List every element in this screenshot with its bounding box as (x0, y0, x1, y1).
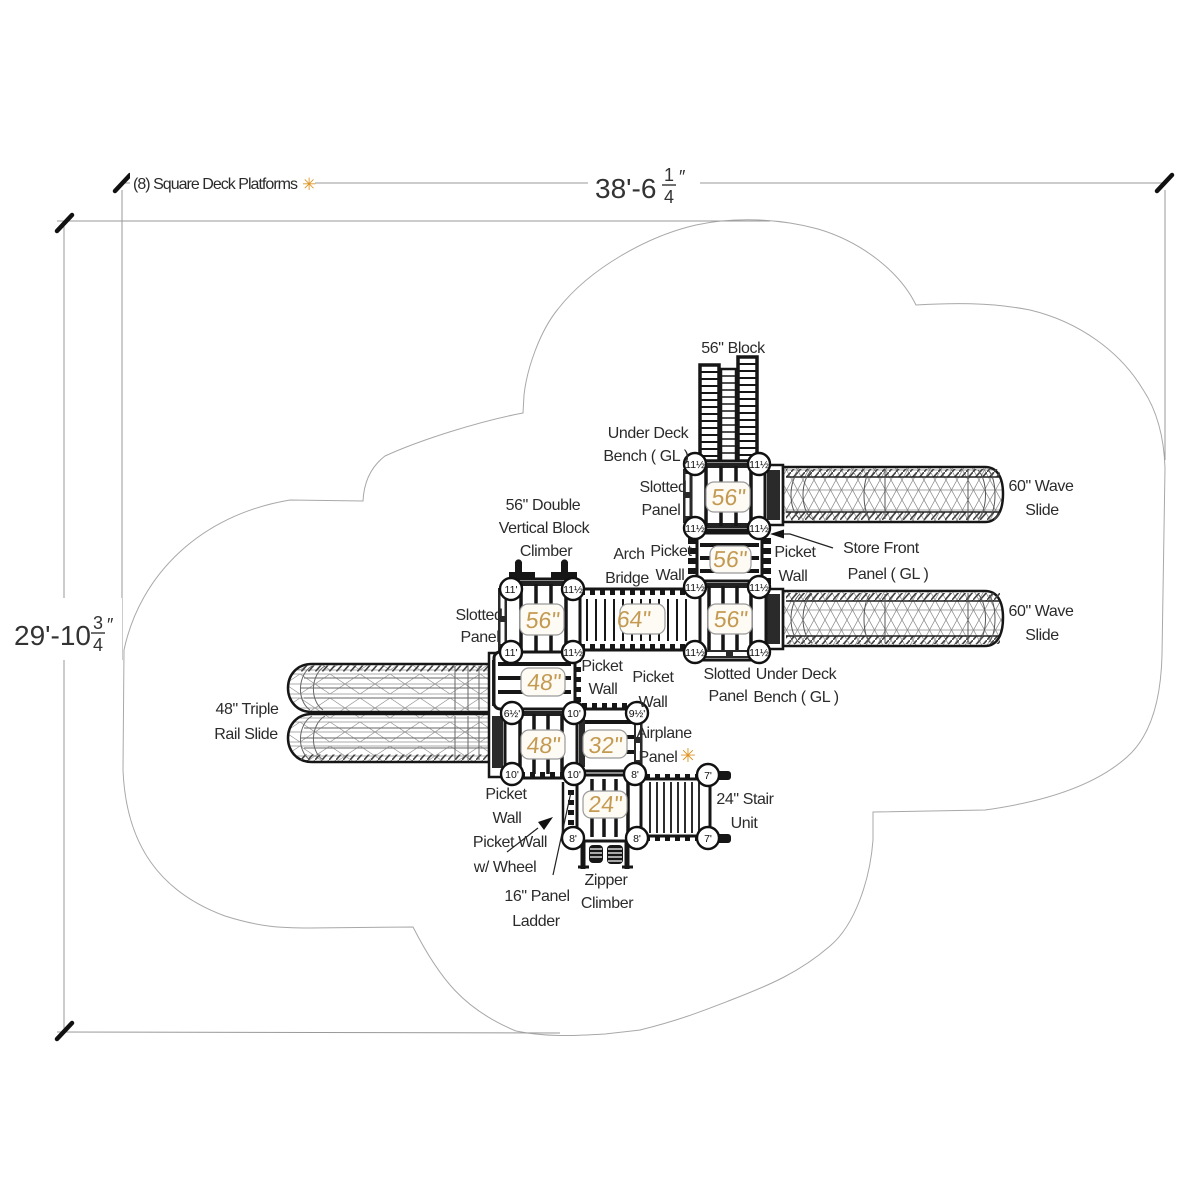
svg-text:56": 56" (525, 607, 561, 633)
svg-text:Panel: Panel (709, 688, 748, 705)
svg-text:10': 10' (505, 769, 519, 781)
svg-text:38'-6: 38'-6 (595, 173, 656, 204)
svg-text:Wall: Wall (656, 567, 685, 584)
svg-text:″: ″ (107, 615, 114, 635)
svg-text:11½: 11½ (685, 647, 705, 659)
svg-text:56": 56" (711, 484, 747, 510)
svg-text:Store Front: Store Front (843, 540, 920, 557)
svg-text:4: 4 (93, 635, 103, 655)
svg-text:6½': 6½' (504, 708, 521, 720)
svg-text:✳: ✳ (680, 746, 696, 767)
svg-text:Wall: Wall (493, 810, 522, 827)
svg-text:Picket: Picket (485, 786, 527, 803)
svg-text:56" Block: 56" Block (701, 340, 766, 357)
svg-text:Panel ( GL ): Panel ( GL ) (848, 566, 929, 583)
svg-text:Slotted: Slotted (703, 666, 750, 683)
svg-text:″: ″ (679, 167, 686, 187)
svg-text:60" Wave: 60" Wave (1008, 478, 1074, 495)
svg-text:60" Wave: 60" Wave (1008, 603, 1074, 620)
svg-text:24": 24" (587, 791, 623, 817)
svg-text:Zipper: Zipper (585, 872, 629, 889)
svg-text:Airplane: Airplane (636, 725, 692, 742)
svg-text:Panel: Panel (639, 749, 678, 766)
svg-text:8': 8' (631, 769, 639, 781)
svg-text:Wall: Wall (639, 694, 668, 711)
svg-text:Slide: Slide (1025, 502, 1059, 519)
svg-text:56" Double: 56" Double (506, 497, 581, 514)
svg-text:7': 7' (704, 770, 712, 782)
svg-text:7': 7' (704, 833, 712, 845)
svg-text:48" Triple: 48" Triple (215, 701, 279, 718)
svg-text:11½: 11½ (563, 584, 583, 596)
svg-text:Ladder: Ladder (512, 913, 560, 930)
svg-text:11½: 11½ (749, 459, 769, 471)
svg-text:(8) Square Deck Platforms: (8) Square Deck Platforms (133, 176, 298, 193)
svg-text:3: 3 (93, 613, 103, 633)
svg-text:1: 1 (664, 165, 674, 185)
svg-text:48": 48" (525, 732, 561, 758)
svg-text:48": 48" (526, 669, 562, 695)
svg-text:Vertical Block: Vertical Block (499, 520, 591, 537)
svg-text:Picket: Picket (650, 543, 692, 560)
svg-text:11½: 11½ (749, 647, 769, 659)
svg-text:11': 11' (505, 647, 518, 659)
svg-text:Wall: Wall (779, 568, 808, 585)
svg-text:Under Deck: Under Deck (756, 666, 838, 683)
svg-text:Slide: Slide (1025, 627, 1059, 644)
svg-text:Panel: Panel (642, 502, 681, 519)
svg-text:11½: 11½ (749, 582, 769, 594)
svg-text:11': 11' (505, 584, 518, 596)
svg-text:Slotted: Slotted (455, 607, 502, 624)
svg-text:Picket: Picket (774, 544, 816, 561)
svg-text:Bridge: Bridge (605, 570, 649, 587)
svg-text:Picket: Picket (632, 669, 674, 686)
svg-text:Bench ( GL ): Bench ( GL ) (603, 448, 688, 465)
svg-text:24" Stair: 24" Stair (716, 791, 774, 808)
svg-text:10': 10' (567, 708, 581, 720)
svg-text:4: 4 (664, 187, 674, 207)
svg-text:Wall: Wall (589, 681, 618, 698)
svg-text:29'-10: 29'-10 (14, 620, 91, 651)
svg-text:8': 8' (569, 833, 577, 845)
svg-text:8': 8' (633, 833, 641, 845)
svg-text:56": 56" (713, 606, 749, 632)
svg-text:Panel: Panel (461, 629, 500, 646)
svg-text:Unit: Unit (731, 815, 759, 832)
svg-text:✳: ✳ (302, 175, 316, 194)
svg-text:Picket: Picket (581, 658, 623, 675)
svg-text:Arch: Arch (613, 546, 644, 563)
svg-text:32": 32" (587, 732, 623, 758)
svg-text:Slotted: Slotted (639, 479, 686, 496)
svg-text:Climber: Climber (581, 895, 634, 912)
svg-text:Bench ( GL ): Bench ( GL ) (753, 689, 838, 706)
svg-text:11½: 11½ (563, 647, 583, 659)
svg-text:64": 64" (616, 606, 652, 632)
svg-text:Rail Slide: Rail Slide (214, 726, 278, 743)
svg-text:11½: 11½ (685, 582, 705, 594)
svg-text:w/ Wheel: w/ Wheel (473, 859, 537, 876)
svg-text:11½: 11½ (749, 523, 769, 535)
svg-text:10': 10' (567, 769, 581, 781)
svg-text:11½: 11½ (685, 523, 705, 535)
svg-text:56": 56" (712, 546, 748, 572)
svg-text:Under Deck: Under Deck (608, 425, 690, 442)
svg-text:Climber: Climber (520, 543, 573, 560)
svg-text:Picket Wall: Picket Wall (473, 834, 547, 851)
svg-text:16" Panel: 16" Panel (504, 888, 569, 905)
